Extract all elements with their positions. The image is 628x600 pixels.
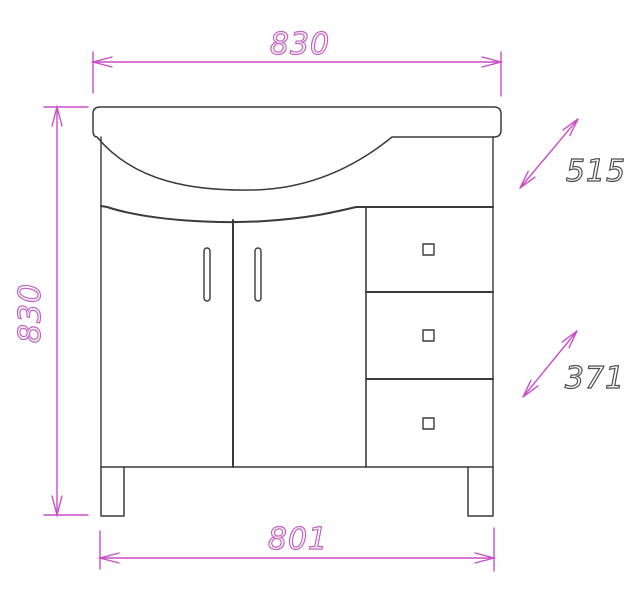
cabinet-drawing	[93, 107, 501, 516]
drawer-handle-3	[423, 418, 434, 429]
apron-curve	[101, 206, 356, 222]
right-door-handle	[255, 248, 261, 301]
left-height-label: 830	[13, 283, 48, 343]
sink-top-outline	[93, 107, 501, 190]
top-width-label: 830	[270, 27, 330, 62]
drawer-handle-2	[423, 330, 434, 341]
lower-diagonal-label: 371	[565, 361, 625, 396]
bottom-width-label: 801	[268, 522, 328, 557]
technical-drawing-canvas: 830 830 515 371 801	[0, 0, 628, 600]
right-leg	[468, 467, 493, 516]
drawing-page: 830 830 515 371 801	[0, 0, 628, 600]
left-door-handle	[204, 248, 210, 301]
depth-label: 515	[566, 154, 626, 189]
left-leg	[101, 467, 124, 516]
drawer-handle-1	[423, 244, 434, 255]
